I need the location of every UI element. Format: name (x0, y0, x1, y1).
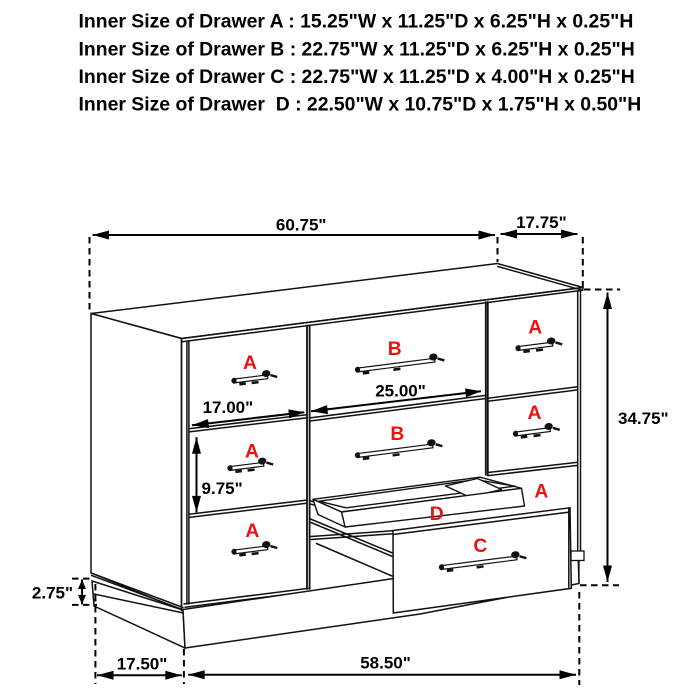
svg-text:A: A (528, 403, 542, 424)
svg-text:25.00": 25.00" (375, 381, 426, 400)
svg-text:B: B (388, 339, 402, 360)
svg-text:D: D (430, 504, 444, 525)
svg-text:Inner Size of Drawer C : 22.75: Inner Size of Drawer C : 22.75"W x 11.25… (79, 66, 635, 88)
svg-text:17.75": 17.75" (516, 213, 567, 232)
svg-text:C: C (473, 536, 487, 557)
svg-text:2.75": 2.75" (32, 583, 73, 602)
svg-text:Inner Size of Drawer B : 22.75: Inner Size of Drawer B : 22.75"W x 11.25… (79, 38, 635, 60)
svg-text:A: A (528, 317, 542, 338)
svg-text:17.50": 17.50" (117, 655, 168, 674)
svg-text:58.50": 58.50" (360, 653, 411, 672)
svg-text:B: B (390, 424, 404, 445)
svg-text:A: A (243, 353, 257, 374)
svg-text:9.75": 9.75" (202, 479, 243, 498)
svg-text:Inner Size of Drawer D : 22.5: Inner Size of Drawer D : 22.50"W x 10.75… (79, 94, 642, 116)
svg-text:A: A (534, 482, 548, 503)
svg-text:17.00": 17.00" (203, 398, 254, 417)
svg-text:34.75": 34.75" (618, 409, 669, 428)
svg-text:A: A (245, 441, 259, 462)
svg-text:A: A (245, 521, 259, 542)
svg-text:Inner Size of Drawer A : 15.25: Inner Size of Drawer A : 15.25"W x 11.25… (79, 11, 634, 33)
svg-text:60.75": 60.75" (276, 216, 327, 235)
